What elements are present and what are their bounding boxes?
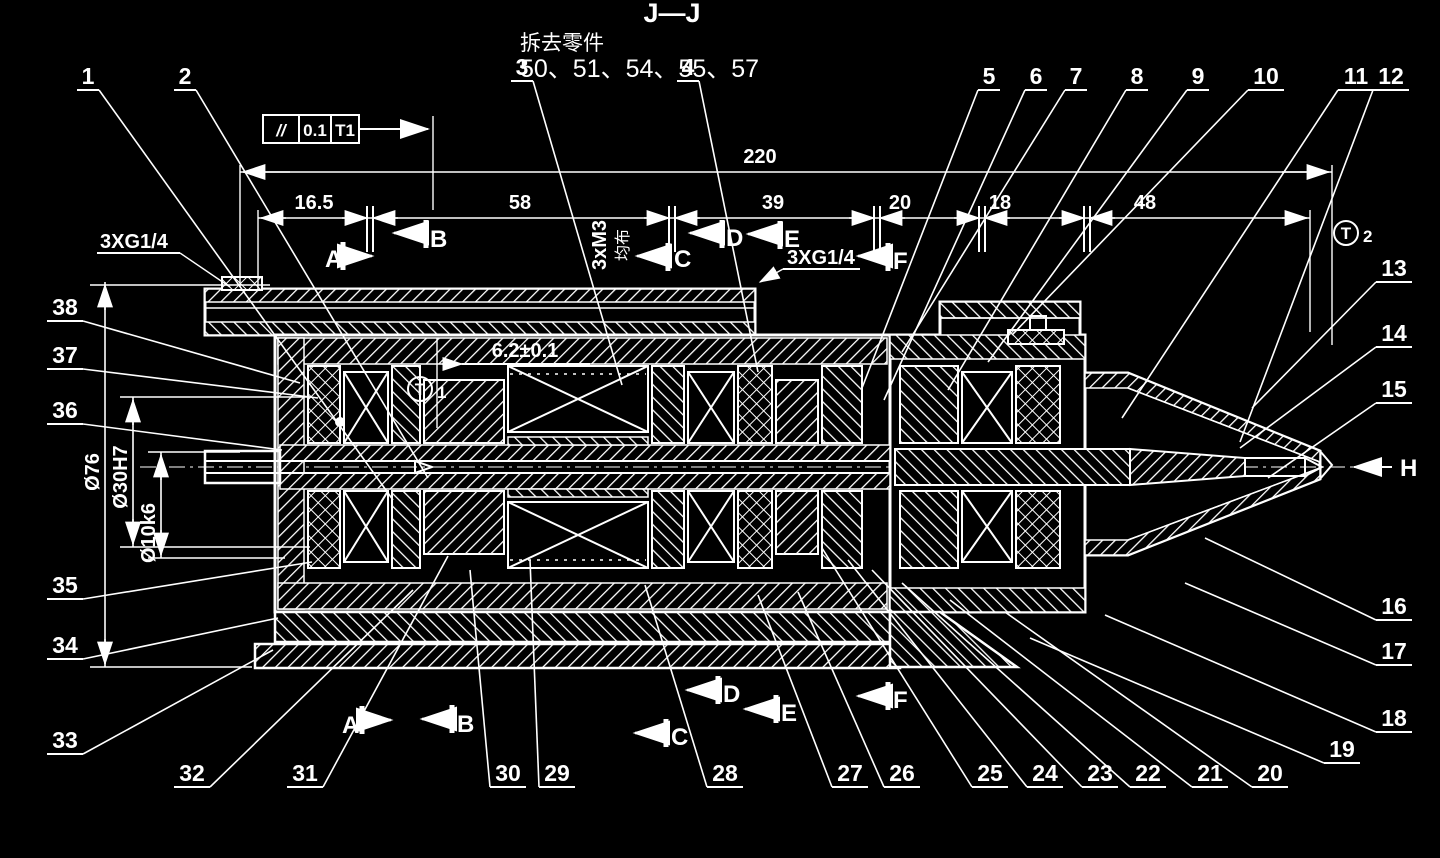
callout-number: 12 — [1378, 63, 1404, 89]
callout-number: 18 — [1381, 705, 1407, 731]
section-letter: D — [723, 681, 740, 708]
dim-segment-58: 58 — [509, 192, 531, 214]
callout-number: 8 — [1131, 63, 1144, 89]
callout-number: 34 — [52, 632, 78, 658]
section-letter: B — [430, 226, 447, 253]
callout-number: 33 — [52, 727, 78, 753]
cad-drawing-page: J—J 拆去零件 50、51、54、55、57 // 0.1 T1 3XG1/4… — [0, 0, 1440, 858]
callout-number: 27 — [837, 760, 863, 786]
callout-number: 7 — [1070, 63, 1083, 89]
callout-number: 25 — [977, 760, 1003, 786]
dim-diameter-Ø10k6: Ø10k6 — [138, 503, 160, 563]
callout-number: 13 — [1381, 255, 1407, 281]
callout-number: 31 — [292, 760, 318, 786]
section-letter: A — [325, 246, 342, 273]
section-letter: F — [893, 687, 908, 714]
callout-number: 20 — [1257, 760, 1283, 786]
bolt-pattern-label: 3xM3 — [589, 220, 611, 270]
clamp-screw — [1008, 330, 1064, 344]
callout-number: 4 — [682, 54, 695, 80]
section-letter: A — [342, 712, 359, 739]
view-arrow-label: H — [1400, 455, 1417, 482]
callout-number: 2 — [179, 63, 192, 89]
port-left-label: 3XG1/4 — [100, 231, 169, 253]
callout-number: 38 — [52, 294, 78, 320]
callout-number: 30 — [495, 760, 521, 786]
callout-number: 28 — [712, 760, 738, 786]
callout-number: 6 — [1030, 63, 1043, 89]
callout-number: 19 — [1329, 736, 1355, 762]
datum-reference: T1 — [335, 121, 355, 140]
callout-number: 11 — [1344, 63, 1369, 89]
tolerance-value: 0.1 — [303, 121, 327, 140]
callout-number: 26 — [889, 760, 915, 786]
datum-digit: 1 — [437, 383, 446, 402]
section-letter: E — [781, 700, 797, 727]
base-plate — [255, 612, 900, 668]
callout-number: 21 — [1197, 760, 1223, 786]
callout-number: 17 — [1381, 638, 1407, 664]
section-letter: D — [726, 225, 743, 252]
width-dim-label: 6.2±0.1 — [492, 340, 559, 362]
datum-letter: T — [1341, 224, 1352, 243]
dim-diameter-Ø76: Ø76 — [82, 453, 104, 491]
callout-number: 24 — [1032, 760, 1058, 786]
section-letter: E — [784, 226, 800, 253]
section-letter: B — [457, 711, 474, 738]
dim-segment-48: 48 — [1134, 192, 1156, 214]
callout-number: 5 — [983, 63, 996, 89]
dim-segment-20: 20 — [889, 192, 911, 214]
callout-number: 1 — [82, 63, 95, 89]
callout-number: 15 — [1381, 376, 1407, 402]
dim-diameter-Ø30H7: Ø30H7 — [110, 445, 132, 508]
removal-note: 拆去零件 — [520, 32, 604, 55]
spindle-section-drawing: J—J 拆去零件 50、51、54、55、57 // 0.1 T1 3XG1/4… — [0, 0, 1440, 858]
removed-parts-list: 50、51、54、55、57 — [520, 55, 759, 83]
datum-digit: 2 — [1363, 227, 1372, 246]
callout-number: 35 — [52, 572, 78, 598]
callout-number: 14 — [1381, 320, 1407, 346]
background — [0, 0, 1440, 858]
callout-number: 22 — [1135, 760, 1161, 786]
callout-number: 16 — [1381, 593, 1407, 619]
callout-number: 37 — [52, 342, 78, 368]
dim-segment-16.5: 16.5 — [295, 192, 334, 214]
section-letter: C — [671, 724, 688, 751]
dim-overall: 220 — [743, 146, 776, 168]
callout-number: 10 — [1253, 63, 1279, 89]
datum-letter: T — [415, 380, 426, 399]
callout-number: 23 — [1087, 760, 1113, 786]
callout-number: 29 — [544, 760, 570, 786]
section-view-title: J—J — [643, 0, 700, 28]
callout-number: 3 — [516, 54, 529, 80]
callout-number: 32 — [179, 760, 205, 786]
section-letter: C — [674, 246, 691, 273]
dim-segment-39: 39 — [762, 192, 784, 214]
callout-number: 36 — [52, 397, 78, 423]
bolt-pattern-note: 均布 — [614, 229, 632, 261]
callout-number: 9 — [1192, 63, 1205, 89]
section-letter: F — [893, 248, 908, 275]
